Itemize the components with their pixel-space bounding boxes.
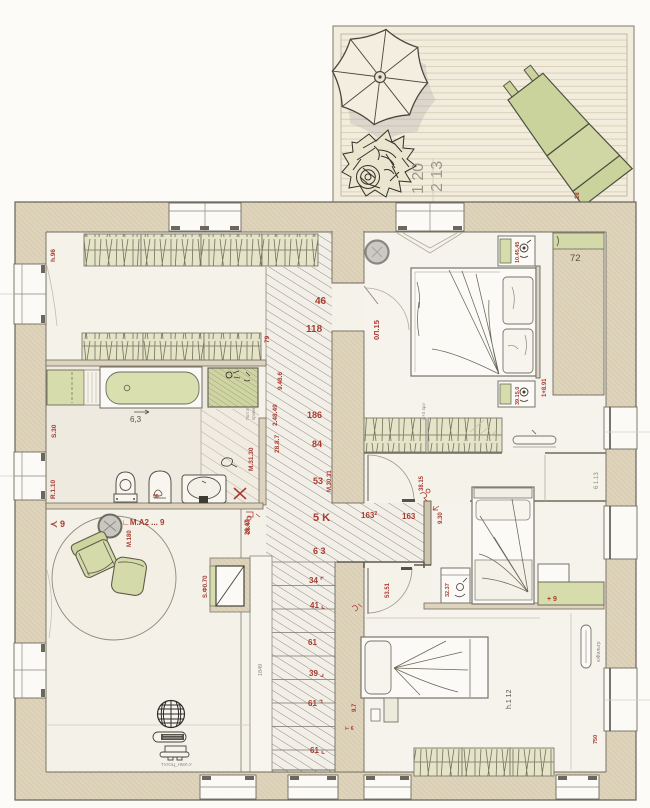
svg-text:h.96: h.96 <box>50 249 57 262</box>
svg-text:9.48.6: 9.48.6 <box>277 372 284 390</box>
svg-text:72: 72 <box>570 253 581 264</box>
svg-text:R.1.10: R.1.10 <box>50 479 57 499</box>
svg-text:M.30.31: M.30.31 <box>327 470 333 492</box>
svg-text:9.30: 9.30 <box>438 512 444 524</box>
svg-text:5 K: 5 K <box>313 512 330 524</box>
svg-text:≺ 9: ≺ 9 <box>50 519 65 529</box>
svg-text:84: 84 <box>312 439 322 449</box>
svg-text:M.180: M.180 <box>127 530 133 547</box>
svg-text:∟M.A2 ... 9: ∟M.A2 ... 9 <box>122 518 165 527</box>
svg-text:18: 18 <box>575 192 581 199</box>
svg-text:58: 58 <box>153 494 159 500</box>
svg-text:10.45.45: 10.45.45 <box>515 242 521 263</box>
svg-text:750: 750 <box>593 735 599 744</box>
svg-text:6 3: 6 3 <box>313 546 326 556</box>
svg-text:34 ⌜: 34 ⌜ <box>309 576 324 585</box>
svg-text:M.31.30: M.31.30 <box>248 447 255 471</box>
svg-text:28.47: 28.47 <box>245 519 251 535</box>
svg-text:61 ⌝: 61 ⌝ <box>308 699 323 708</box>
svg-text:h.1 12: h.1 12 <box>506 689 513 709</box>
svg-text:1 20: 1 20 <box>410 163 427 194</box>
svg-text:53: 53 <box>313 476 323 486</box>
svg-text:Λ+3 4μν: Λ+3 4μν <box>421 403 426 420</box>
svg-text:2 13: 2 13 <box>429 161 446 192</box>
svg-text:79: 79 <box>264 335 271 343</box>
svg-text:9.7: 9.7 <box>352 703 358 712</box>
svg-text:S.30: S.30 <box>51 424 58 438</box>
svg-text:⊢ 6: ⊢ 6 <box>345 724 354 732</box>
svg-text:118: 118 <box>306 324 323 335</box>
svg-text:38.15: 38.15 <box>419 475 425 491</box>
svg-text:53.51: 53.51 <box>385 582 391 598</box>
svg-text:46: 46 <box>315 296 327 307</box>
svg-text:41 ⌞: 41 ⌞ <box>310 601 325 610</box>
svg-text:6 1.13: 6 1.13 <box>594 472 600 489</box>
svg-text:28.8.7: 28.8.7 <box>274 435 281 453</box>
svg-text:ТУ.ЮЦ_НМЛ.У: ТУ.ЮЦ_НМЛ.У <box>161 762 192 767</box>
svg-text:61 ⌞: 61 ⌞ <box>310 746 325 755</box>
svg-text:163: 163 <box>402 512 416 521</box>
svg-text:32.37: 32.37 <box>445 583 451 597</box>
svg-text:6,3: 6,3 <box>130 415 142 424</box>
svg-text:1+8.91: 1+8.91 <box>542 378 548 397</box>
svg-text:юФильтр: юФильтр <box>596 641 602 662</box>
svg-text:39 ⌟: 39 ⌟ <box>309 669 324 678</box>
svg-text:186: 186 <box>307 410 322 420</box>
svg-text:S.Ф0.70: S.Ф0.70 <box>203 575 209 598</box>
svg-text:39.15.0: 39.15.0 <box>515 387 521 405</box>
svg-text:0Л.15: 0Л.15 <box>372 320 381 340</box>
svg-text:+ 9: + 9 <box>547 596 557 603</box>
svg-text:1849: 1849 <box>258 664 264 676</box>
svg-text:2.48.49: 2.48.49 <box>272 404 279 426</box>
svg-text:61: 61 <box>308 638 317 647</box>
